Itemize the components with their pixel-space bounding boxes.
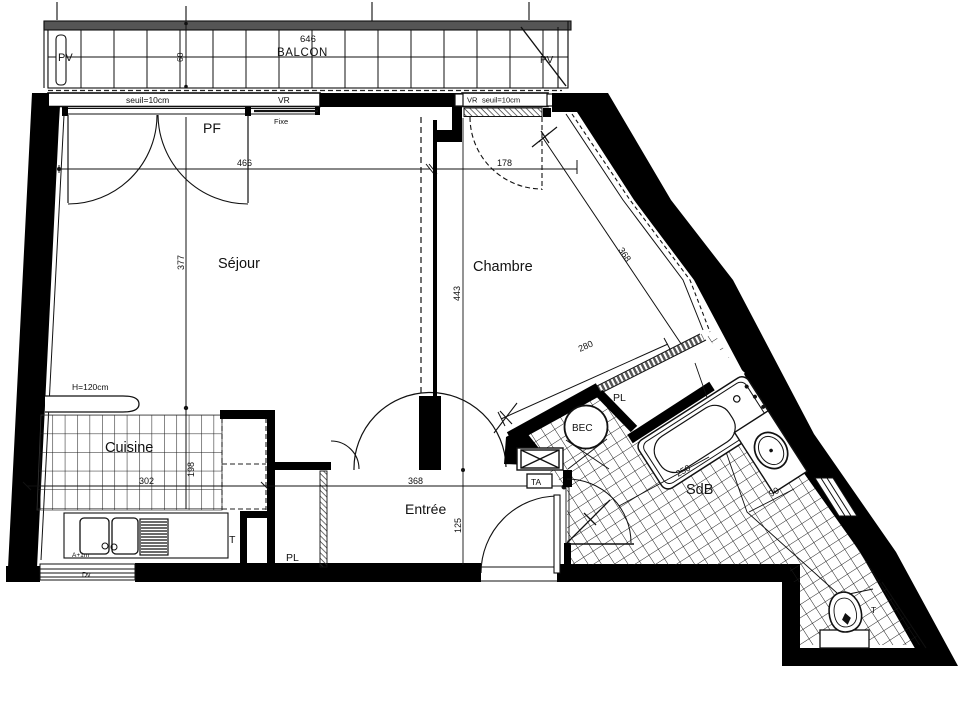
svg-text:Cuisine: Cuisine bbox=[105, 440, 153, 456]
svg-text:PV: PV bbox=[58, 52, 73, 64]
svg-text:646: 646 bbox=[300, 34, 316, 45]
svg-text:377: 377 bbox=[176, 255, 186, 270]
svg-text:PF: PF bbox=[203, 120, 221, 136]
svg-text:VR: VR bbox=[467, 96, 478, 105]
svg-text:Séjour: Séjour bbox=[218, 256, 260, 272]
svg-text:SdB: SdB bbox=[686, 482, 713, 498]
svg-text:Fixe: Fixe bbox=[274, 117, 288, 126]
svg-text:TA: TA bbox=[531, 477, 542, 487]
svg-text:60: 60 bbox=[175, 52, 185, 62]
svg-text:PV: PV bbox=[540, 55, 554, 66]
svg-text:VR: VR bbox=[278, 95, 290, 105]
svg-text:T: T bbox=[871, 605, 876, 615]
svg-text:178: 178 bbox=[497, 158, 512, 168]
svg-text:T: T bbox=[229, 534, 236, 546]
svg-text:368: 368 bbox=[408, 476, 423, 486]
svg-text:seuil=10cm: seuil=10cm bbox=[126, 95, 169, 105]
svg-text:A+1m: A+1m bbox=[72, 552, 89, 559]
svg-text:302: 302 bbox=[139, 476, 154, 486]
svg-text:466: 466 bbox=[237, 158, 252, 168]
svg-text:198: 198 bbox=[186, 462, 196, 477]
svg-text:H=120cm: H=120cm bbox=[72, 382, 109, 392]
svg-text:PL: PL bbox=[613, 392, 626, 404]
svg-text:125: 125 bbox=[453, 518, 463, 533]
svg-text:Entrée: Entrée bbox=[405, 501, 446, 517]
svg-text:443: 443 bbox=[452, 286, 462, 301]
svg-text:BEC: BEC bbox=[572, 423, 593, 434]
svg-text:Dv: Dv bbox=[82, 572, 91, 579]
svg-text:seuil=10cm: seuil=10cm bbox=[482, 96, 520, 105]
svg-text:PL: PL bbox=[286, 552, 299, 564]
svg-text:BALCON: BALCON bbox=[277, 47, 328, 59]
svg-text:Chambre: Chambre bbox=[473, 259, 533, 275]
